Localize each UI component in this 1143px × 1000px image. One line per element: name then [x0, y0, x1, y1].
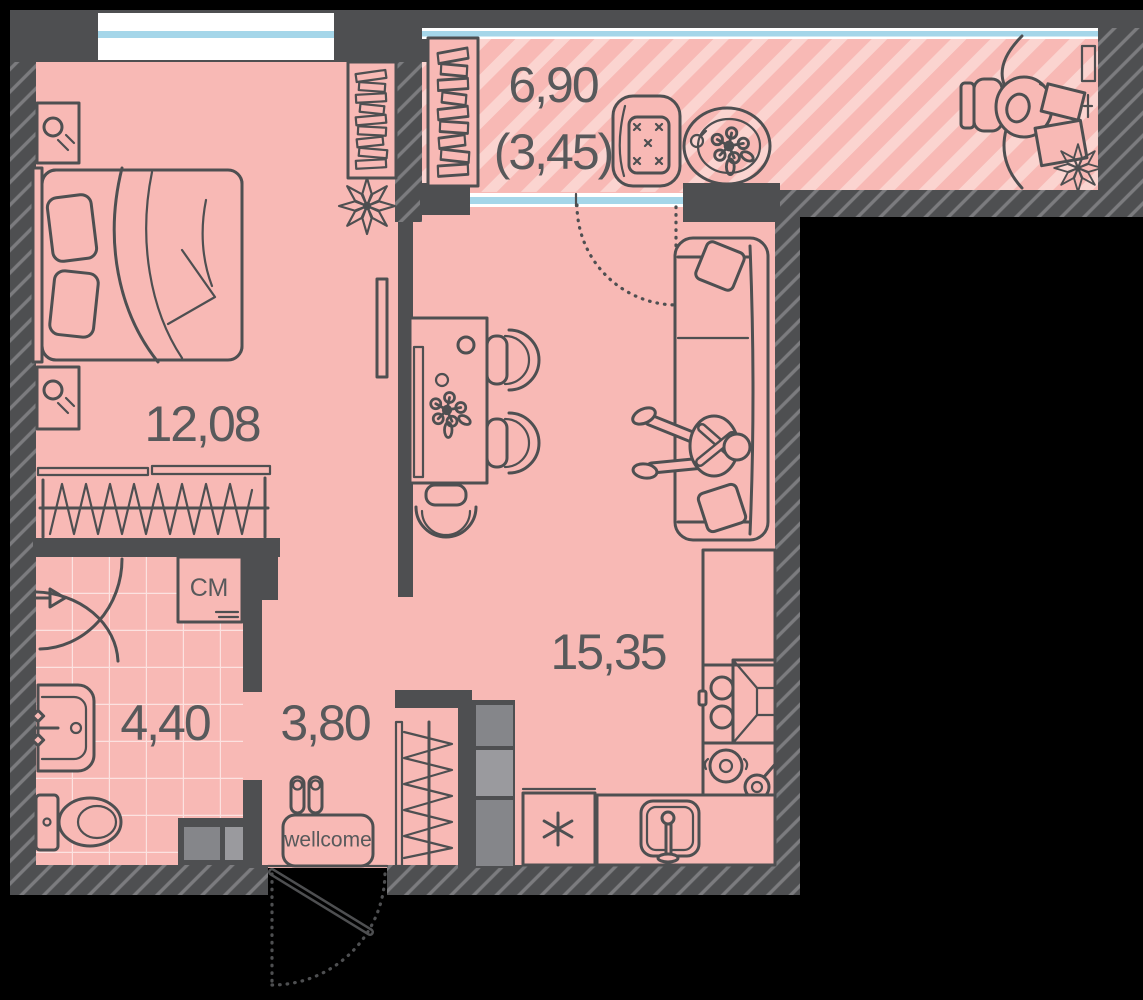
head	[724, 434, 750, 460]
kitchen-sink	[641, 801, 699, 862]
paper	[1035, 120, 1087, 165]
doormat-label: wellcome	[283, 829, 372, 852]
toilet	[36, 795, 121, 850]
exterior-wall-left	[10, 10, 36, 895]
bedroom-window	[98, 13, 334, 60]
washing-machine: СМ	[178, 557, 242, 622]
wall-bedroom-bathroom	[33, 538, 280, 557]
pillar-bedroom-balcony	[395, 35, 422, 222]
pillow	[46, 194, 97, 263]
nightstand-bottom	[37, 367, 79, 429]
washing-machine-label: СМ	[190, 574, 229, 602]
balcony-shelf	[428, 38, 478, 186]
exterior-wall-bottom-right	[387, 865, 800, 895]
fridge	[523, 789, 595, 865]
exterior-wall-right	[775, 217, 800, 895]
hallway-cabinet	[476, 705, 513, 866]
bathroom-sink	[32, 685, 94, 771]
balcony-window-top	[422, 28, 1098, 39]
wall-balcony-window-right	[683, 183, 780, 222]
wall-balcony-window-left	[420, 183, 470, 215]
wall-bathroom-right-upper	[243, 557, 262, 692]
floor-plan-page: 12,08 СМ	[0, 0, 1143, 1000]
hallway-area-label: 3,80	[280, 695, 370, 751]
double-bed	[33, 168, 242, 362]
exterior-wall-balcony-right	[1098, 10, 1143, 217]
desk-chair	[961, 83, 974, 128]
wall-balcony-top	[420, 10, 1143, 28]
nightstand-top	[37, 103, 79, 163]
dining-table	[410, 318, 487, 483]
exterior-wall-bottom-left	[10, 865, 268, 895]
armchair	[613, 96, 680, 186]
living-kitchen-area-label: 15,35	[550, 624, 665, 680]
bedroom-area-label: 12,08	[144, 396, 259, 452]
balcony-area-label: 6,90	[508, 57, 598, 113]
exterior-wall-under-balcony	[780, 190, 1143, 217]
floor-plan: 12,08 СМ	[0, 0, 1143, 1000]
bathroom-cabinet	[178, 818, 246, 865]
tv	[377, 279, 387, 377]
bedroom-bookshelf	[348, 62, 396, 178]
pillow	[49, 270, 99, 338]
bathroom-area-label: 4,40	[120, 695, 210, 751]
balcony-area-coefficient-label: (3,45)	[494, 124, 613, 180]
